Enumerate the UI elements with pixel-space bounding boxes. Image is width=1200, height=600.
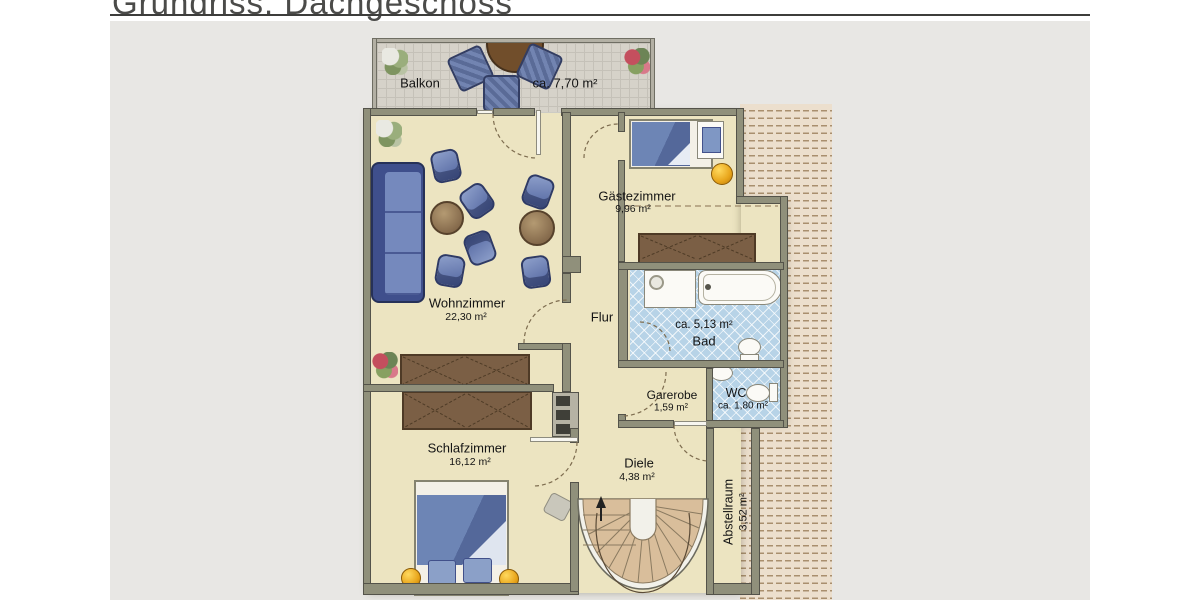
room-label-abstellraum: Abstellraum 3,52 m²: [721, 479, 750, 545]
pillow-icon: [428, 560, 456, 585]
wall: [363, 384, 554, 392]
room-label-balkon: Balkon: [400, 76, 440, 91]
wall: [363, 108, 477, 116]
wall: [706, 368, 713, 422]
plant-icon: [376, 120, 402, 147]
wall: [363, 583, 579, 595]
room-area-abstellraum: 3,52 m²: [737, 479, 751, 545]
room-label-gaestezimmer: Gästezimmer: [598, 189, 675, 204]
plant-icon: [372, 352, 398, 379]
bedroom-door-leaf: [530, 437, 578, 442]
nightstand-icon: [697, 121, 724, 159]
wall: [562, 343, 571, 392]
bathtub-icon: [698, 270, 782, 305]
wall: [618, 360, 784, 368]
bathtub-inner: [703, 274, 776, 301]
room-label-wohnzimmer: Wohnzimmer: [429, 296, 505, 311]
armchair-icon: [433, 253, 466, 289]
room-area-garderobe: 1,59 m²: [654, 403, 688, 414]
door-leaf: [674, 421, 707, 426]
floor-plan-page: Grundriss: Dachgeschoss: [0, 0, 1200, 600]
page-title: Grundriss: Dachgeschoss: [112, 0, 513, 22]
room-label-diele: Diele: [624, 456, 654, 471]
wall: [618, 112, 625, 132]
wardrobe-icon: [402, 391, 532, 430]
wall: [706, 428, 714, 595]
room-label-flur: Flur: [591, 310, 613, 325]
balcony-chair-icon: [483, 75, 520, 112]
sofa-icon: [371, 162, 425, 303]
wall: [618, 262, 784, 270]
room-label-bad: Bad: [692, 334, 715, 349]
room-label-wc: WC: [726, 386, 747, 400]
room-area-bad: ca. 5,13 m²: [675, 319, 733, 331]
room-area-schlafzimmer: 16,12 m²: [449, 456, 490, 468]
sofa-cushions: [385, 172, 421, 295]
wall: [363, 108, 371, 595]
sideboard-icon: [400, 354, 530, 387]
wall: [706, 420, 784, 428]
shower-icon: [644, 270, 696, 308]
room-area-wohnzimmer: 22,30 m²: [445, 311, 486, 323]
nightstand-top: [702, 127, 721, 153]
double-bed-icon: [414, 480, 509, 596]
balcony-door-leaf: [536, 110, 541, 155]
wall: [618, 269, 628, 362]
lamp-icon: [711, 163, 733, 185]
room-area-balkon: ca. 7,70 m²: [532, 76, 597, 91]
wall: [736, 108, 744, 204]
wall: [562, 112, 571, 258]
armchair-icon: [520, 254, 552, 290]
wall: [570, 482, 579, 592]
plant-icon: [624, 48, 650, 75]
room-area-diele: 4,38 m²: [619, 471, 655, 483]
wall-pillar: [562, 256, 581, 273]
room-area-wc: ca. 1,80 m²: [718, 401, 768, 412]
title-divider: [110, 14, 1090, 16]
wall: [780, 196, 788, 428]
balcony-door: [477, 110, 493, 114]
room-area-gaestezimmer: 9,96 m²: [615, 203, 651, 215]
balcony-wall: [372, 38, 377, 112]
plant-icon: [382, 48, 408, 75]
shelf-boxes: [556, 396, 570, 434]
room-label-garderobe: Garerobe: [647, 388, 698, 402]
wall: [751, 428, 760, 595]
blanket-fold: [668, 143, 690, 165]
coffee-table-icon: [519, 210, 555, 246]
shower-head: [649, 275, 664, 290]
faucet: [705, 284, 711, 290]
room-label-abstellraum-name: Abstellraum: [721, 479, 737, 545]
pillow-icon: [463, 558, 492, 583]
guest-dresser-icon: [638, 233, 756, 264]
room-label-schlafzimmer: Schlafzimmer: [428, 441, 507, 456]
wall: [561, 108, 744, 116]
toilet-tank: [769, 383, 778, 402]
wall: [618, 420, 674, 428]
wall: [562, 273, 571, 303]
toilet-icon: [746, 384, 770, 402]
coffee-table-icon: [430, 201, 464, 235]
wall: [493, 108, 535, 116]
balcony-wall: [650, 38, 655, 112]
